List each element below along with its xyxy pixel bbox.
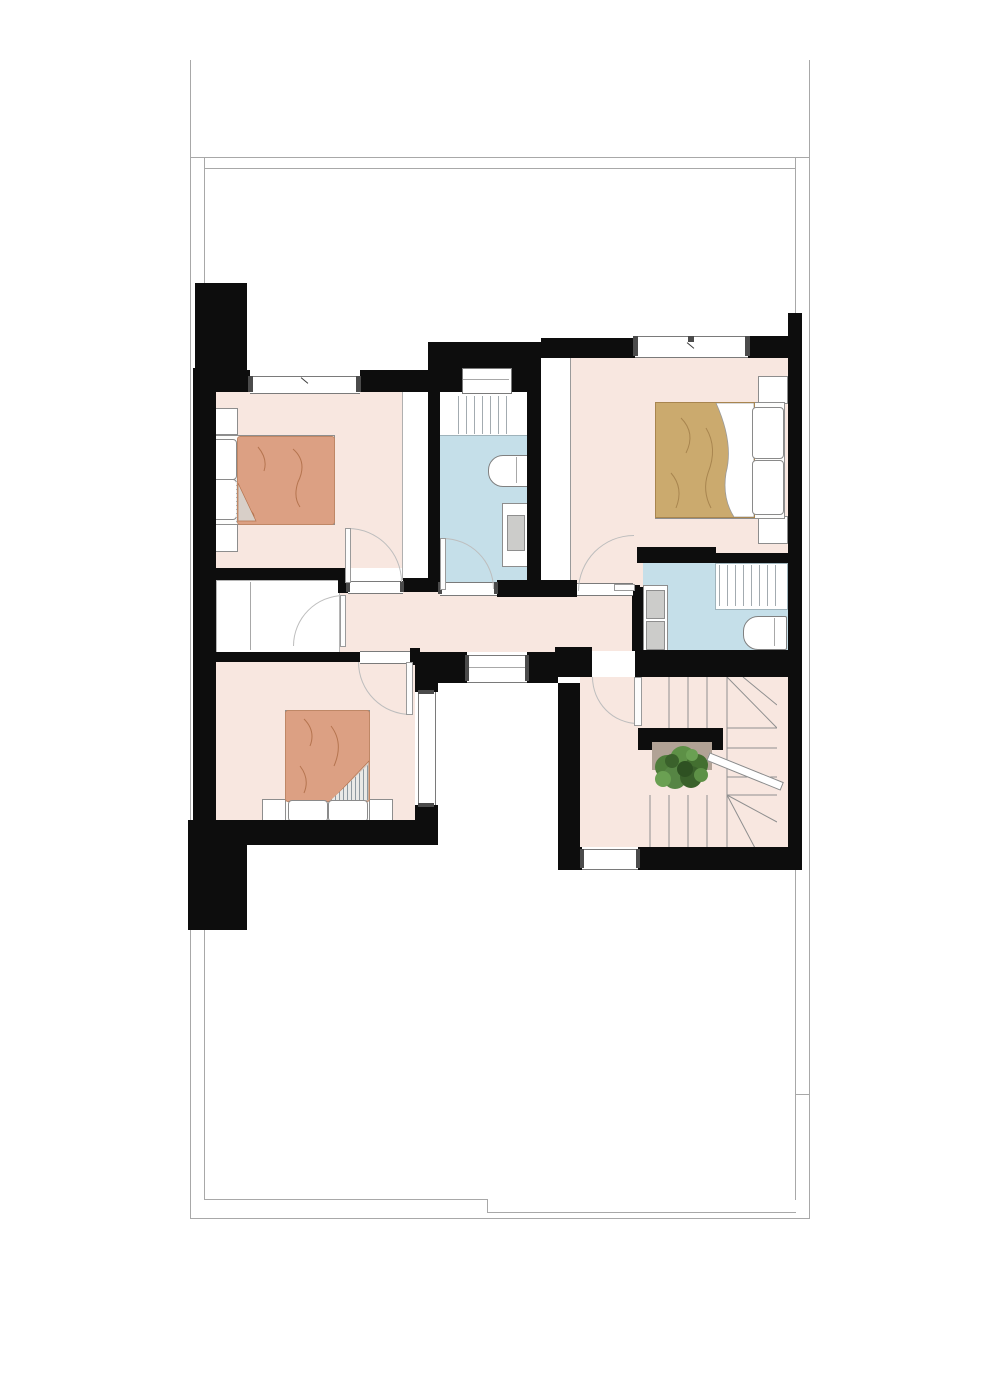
outline-bottom-outer [190,1218,810,1219]
wall-lightwell-top-left [438,652,467,683]
wall-bedroom2-south [710,553,788,563]
window-bathroom1-slot-line [463,379,509,380]
corridor-floor [338,592,643,652]
wall-stairhall-bottom-right [638,847,788,870]
bathroom1-sink [507,515,525,551]
bedroom2-blanket-creases [656,403,754,517]
wall-bathroom1-left [428,342,440,592]
wall-lightwell-right [558,683,580,870]
outline-top-outer [190,157,810,158]
window-lightwell-cap-left [465,655,469,681]
closet-room-divider [250,582,251,650]
door-leaf-closet [340,595,346,647]
bedroom2-nightstand-top [758,376,788,404]
outline-top-inner [204,168,796,169]
wall-bedroom3-right-bottom [415,805,438,845]
wall-ensuite-top [637,547,716,563]
wall-corridor-south [216,652,360,662]
window-stairhall-cap-right [636,849,640,868]
wall-ensuite-left [632,587,643,652]
bedroom2-pillow-1 [752,407,784,459]
door-leaf-stairhall [634,677,642,726]
window-bedroom1 [250,376,360,394]
window-bedroom2-cap-right [745,336,750,356]
outline-bottom-step [487,1199,488,1213]
window-lightwell-line [467,667,527,668]
wall-right [788,313,802,870]
window-bedroom3-cap-top [418,690,434,694]
wall-bathroom1-right [527,392,541,592]
wall-bedroom1-bottom [216,568,338,580]
window-lightwell [467,655,527,683]
window-bedroom3 [418,692,436,805]
window-bedroom3-cap-bottom [418,803,434,807]
wall-bedroom2-top-left [541,338,635,358]
window-bathroom1-slot [462,368,512,394]
ensuite-shower-grate [719,565,783,606]
wall-lightwell-top-right [527,652,558,683]
wardrobe-strip [541,358,571,582]
bedroom1-blanket-creases [238,437,334,524]
toilet-tank-line [516,457,517,483]
door-leaf-bathroom1 [440,538,446,590]
wall-corridor-north [497,580,577,597]
floor-plan-canvas [0,0,990,1400]
window-bedroom2-mullion [688,336,694,342]
outline-right-tick [795,1094,810,1095]
outline-left-outer [190,60,191,1218]
bathtub-line [774,618,775,646]
door-leaf-bedroom1 [345,528,351,583]
bedroom1-blanket [237,436,335,525]
closet-strip [402,392,430,580]
window-stairhall-cap-left [580,849,584,868]
outline-right-outer [809,60,810,1218]
wall-stairhall-bottom-left [558,847,582,870]
ensuite-sink-1 [646,590,665,619]
opening-stairhall [592,651,635,677]
door-leaf-bedroom3 [406,662,413,715]
wall-bedroom1-top-right [360,370,437,392]
wall-bedroom3-bottom [216,820,438,845]
bathroom1-shower-grate [458,396,514,434]
plant-icon [645,733,721,805]
wall-left [193,368,216,820]
wall-cap-closet-strip [403,578,440,592]
window-stairhall [582,849,638,870]
toilet [488,455,529,487]
bathtub [743,616,787,650]
bedroom2-nightstand-bottom [758,516,788,544]
bedroom2-pillow-2 [752,460,784,515]
window-bedroom1-cap-left [248,376,253,392]
outline-bottom-inner-right [487,1212,796,1213]
potted-plant [645,733,721,805]
opening-bedroom1-cap-r [400,581,404,592]
door-leaf-bedroom2 [614,584,635,591]
window-lightwell-cap-right [525,655,529,681]
bedroom3-pillow-2 [328,800,368,822]
wall-bedroom3-right-top [415,652,438,692]
wall-stairhall-band-left [555,647,592,677]
ensuite-sink-2 [646,621,665,650]
opening-bathroom1-cap-r [494,582,498,594]
wall-topleft-block [195,283,247,370]
window-bedroom2-cap-left [633,336,638,356]
wall-bedroom2-top-right [748,336,788,358]
wall-bedroom1-top-left [216,370,250,392]
bedroom3-pillow-1 [288,800,328,822]
wall-stairhall-band-right [635,650,788,677]
window-bedroom1-cap-right [356,376,361,392]
bedroom2-blanket [655,402,755,518]
opening-bedroom1 [348,581,403,594]
outline-bottom-inner-left [204,1199,488,1200]
